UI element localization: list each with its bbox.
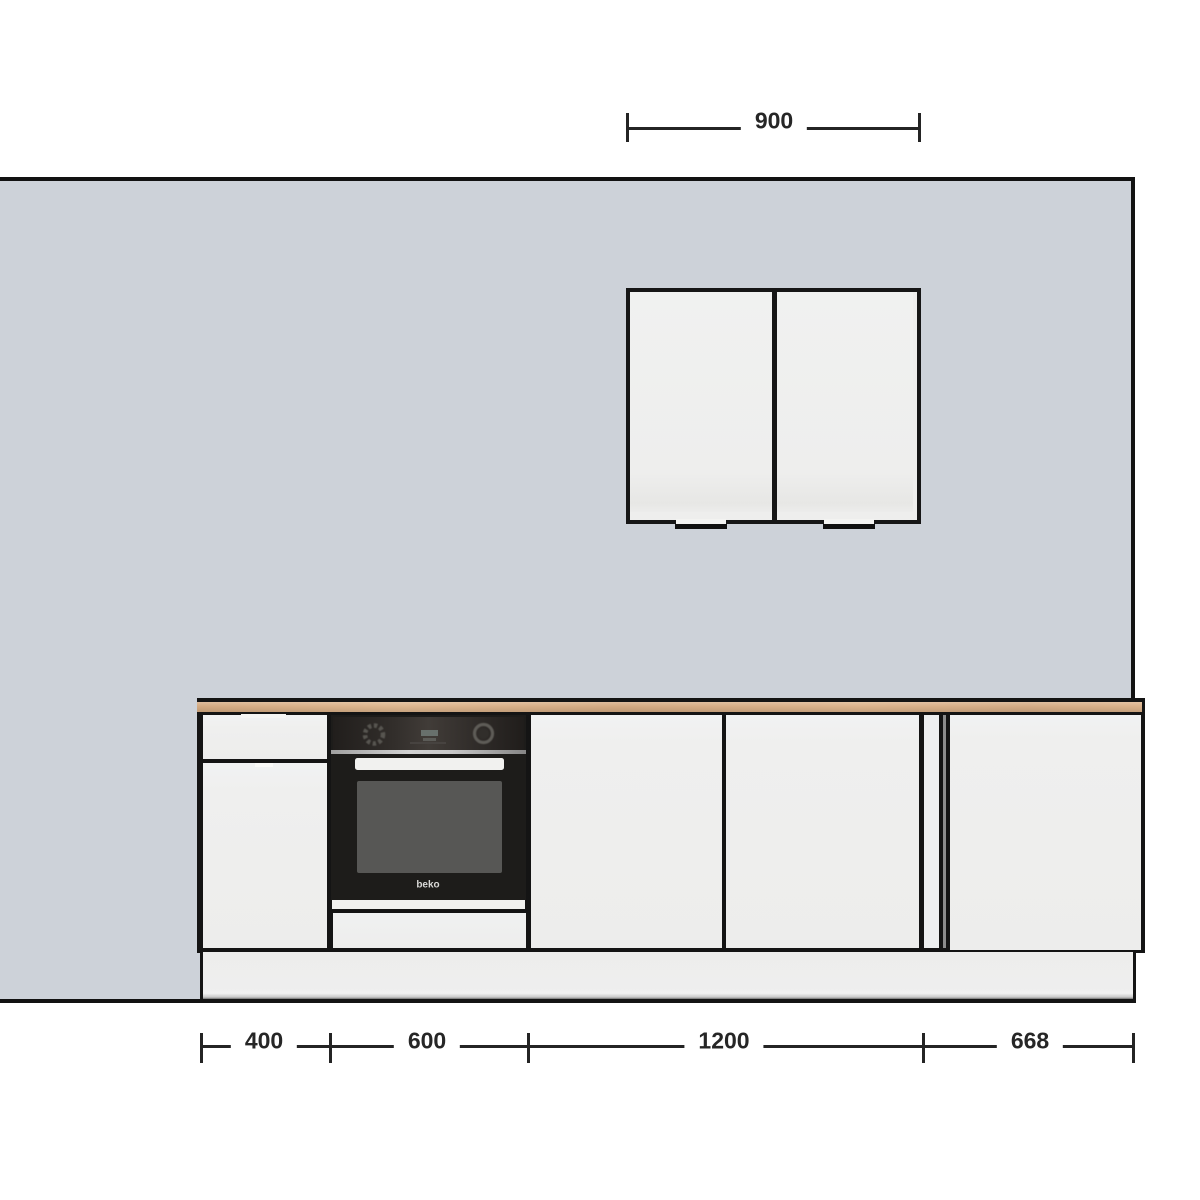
svg-text:beko: beko [416,880,439,891]
